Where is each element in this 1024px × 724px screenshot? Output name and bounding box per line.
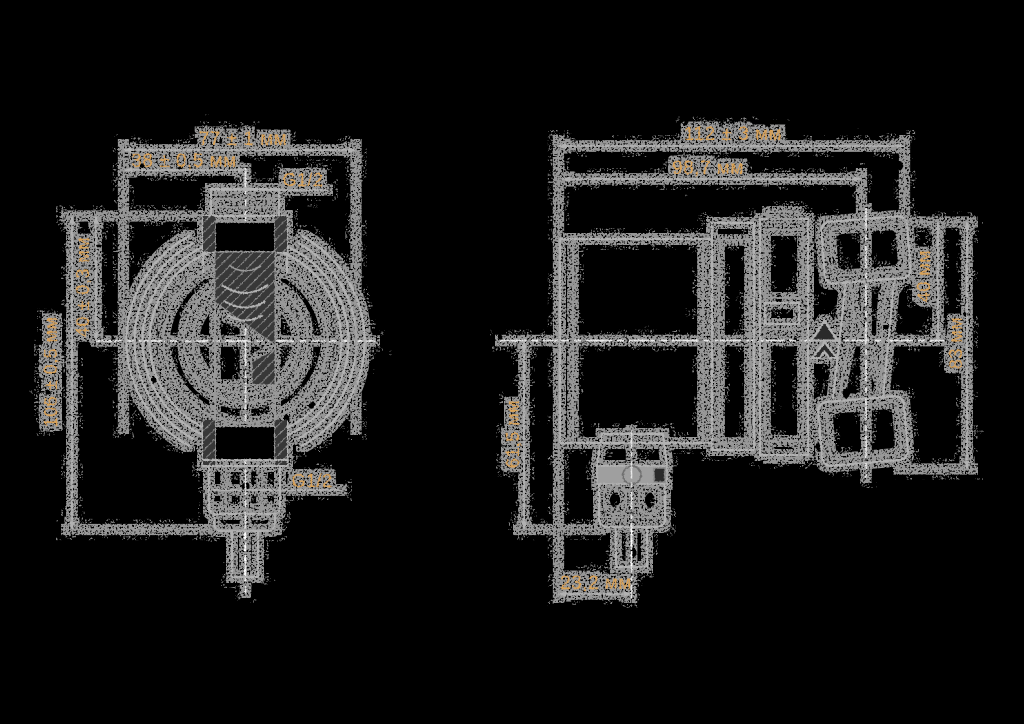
svg-text:23,2 мм: 23,2 мм (560, 573, 632, 594)
svg-text:106 ± 0,5 мм: 106 ± 0,5 мм (41, 317, 61, 428)
svg-text:40 ± 0,3 мм: 40 ± 0,3 мм (73, 237, 93, 337)
svg-text:40 мм: 40 мм (914, 250, 934, 302)
svg-text:G1/2: G1/2 (282, 170, 323, 190)
svg-text:38 ± 0,5 мм: 38 ± 0,5 мм (131, 151, 236, 172)
svg-text:77 ± 1 мм: 77 ± 1 мм (199, 129, 288, 150)
svg-text:112 ± 3 мм: 112 ± 3 мм (684, 124, 782, 145)
svg-text:G1/2: G1/2 (291, 471, 332, 491)
svg-text:61,5 мм: 61,5 мм (503, 400, 523, 468)
svg-text:83 мм: 83 мм (946, 317, 966, 369)
svg-text:98,7 мм: 98,7 мм (672, 158, 744, 179)
